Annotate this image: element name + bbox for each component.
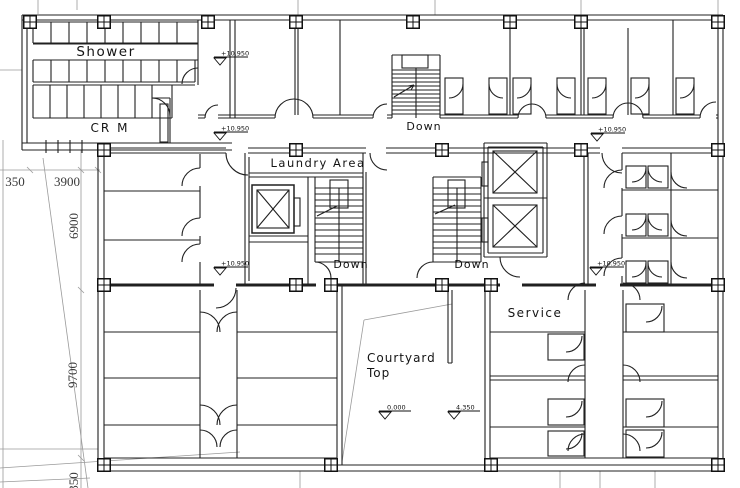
column-marker: [574, 143, 588, 157]
column-marker: [574, 15, 588, 29]
column-marker: [324, 278, 338, 292]
courtyard-label-line2: Top: [366, 366, 390, 380]
courtyard-label-line1: Courtyard: [367, 351, 436, 365]
column-marker: [484, 458, 498, 472]
down-label-left: Down: [333, 258, 368, 271]
elevation-value: 4.350: [456, 404, 475, 412]
elevation-value: +10.950: [597, 260, 625, 268]
dim-350-vertical: 350: [66, 472, 81, 488]
column-marker: [484, 278, 498, 292]
shower-label: Shower: [76, 44, 135, 60]
service-label: Service: [508, 306, 563, 320]
column-marker: [435, 278, 449, 292]
cr-m-label: CR M: [91, 121, 130, 135]
laundry-area-label: Laundry Area: [271, 156, 366, 170]
elevation-value: +10.950: [221, 50, 249, 58]
column-marker: [711, 143, 725, 157]
column-marker: [23, 15, 37, 29]
dim-350-horizontal: 350: [5, 174, 25, 189]
column-marker: [289, 15, 303, 29]
column-marker: [201, 15, 215, 29]
column-marker: [711, 278, 725, 292]
column-marker: [97, 458, 111, 472]
paper-background: [0, 0, 740, 488]
column-marker: [435, 143, 449, 157]
column-marker: [711, 458, 725, 472]
column-marker: [97, 143, 111, 157]
column-marker: [97, 278, 111, 292]
column-marker: [97, 15, 111, 29]
dim-9700-vertical: 9700: [65, 362, 80, 388]
floor-plan-drawing: Shower CR M Laundry Area Down Down Down …: [0, 0, 740, 488]
dim-6900-vertical: 6900: [66, 213, 81, 239]
column-marker: [503, 15, 517, 29]
elevation-value: 0.000: [387, 404, 406, 412]
dim-3900-horizontal: 3900: [54, 174, 80, 189]
column-marker: [711, 15, 725, 29]
floor-plan-canvas: Shower CR M Laundry Area Down Down Down …: [0, 0, 740, 488]
down-label-top: Down: [406, 120, 441, 133]
elevation-value: +10.950: [598, 126, 626, 134]
column-marker: [289, 278, 303, 292]
down-label-right: Down: [454, 258, 489, 271]
column-marker: [289, 143, 303, 157]
column-marker: [406, 15, 420, 29]
column-marker: [324, 458, 338, 472]
elevation-value: +10.950: [221, 260, 249, 268]
elevation-value: +10.950: [221, 125, 249, 133]
